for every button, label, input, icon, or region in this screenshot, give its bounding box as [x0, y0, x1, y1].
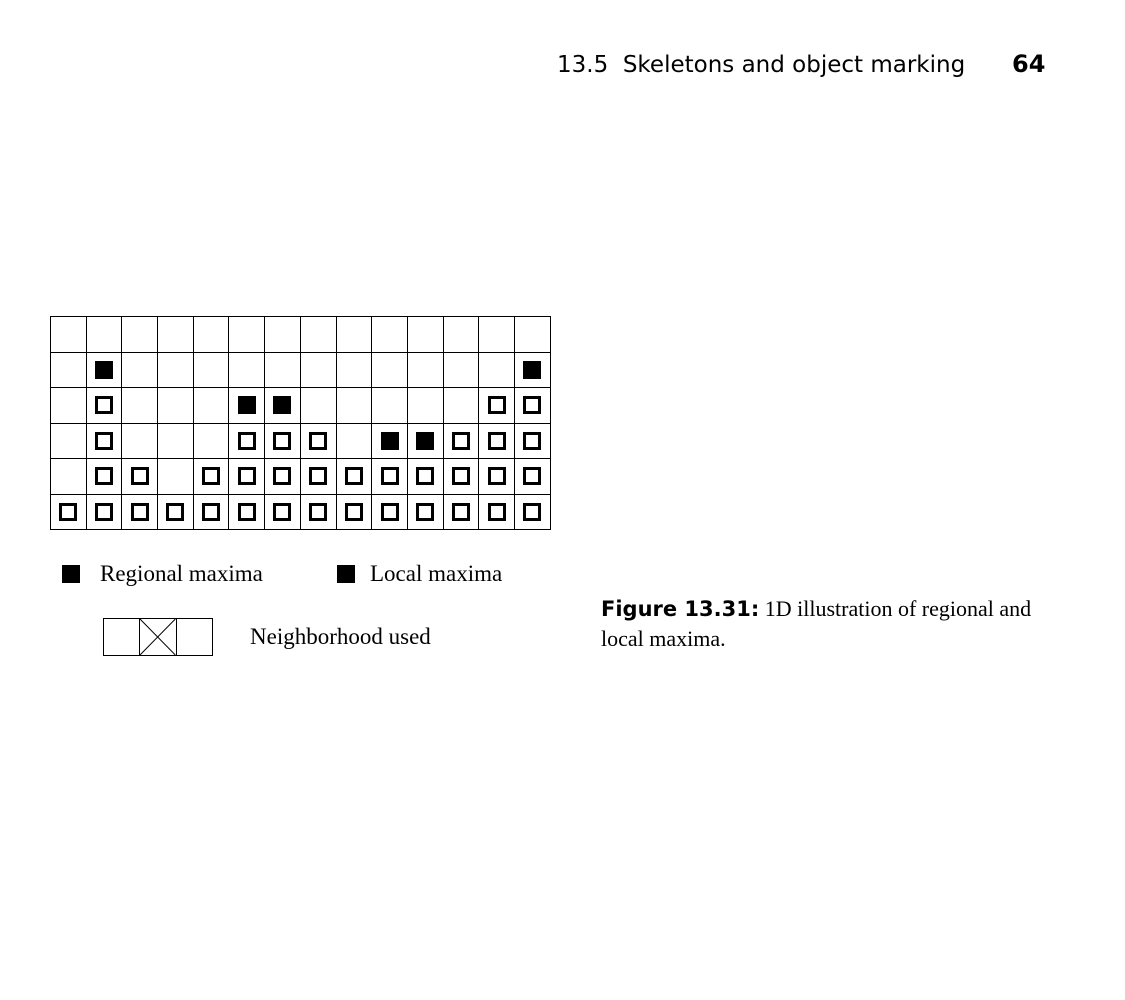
grid-cell	[444, 424, 480, 460]
grid-cell	[515, 459, 551, 495]
pixel-grid	[50, 316, 551, 530]
regional-maxima-swatch-icon	[62, 565, 80, 583]
filled-square	[381, 432, 399, 450]
filled-square	[416, 432, 434, 450]
figure-caption: Figure 13.31: 1D illustration of regiona…	[601, 594, 1069, 653]
outline-square	[488, 432, 506, 450]
x-mark-icon	[140, 619, 176, 655]
grid-cell	[372, 317, 408, 353]
grid-cell	[515, 317, 551, 353]
local-maxima-label: Local maxima	[370, 562, 502, 585]
grid-cell	[158, 388, 194, 424]
grid-cell	[479, 388, 515, 424]
grid-cell	[372, 495, 408, 531]
grid-cell	[301, 388, 337, 424]
outline-square	[95, 467, 113, 485]
grid-cell	[479, 459, 515, 495]
outline-square	[131, 467, 149, 485]
grid-cell	[444, 495, 480, 531]
grid-cell	[158, 459, 194, 495]
grid-cell	[265, 424, 301, 460]
grid-cell	[301, 317, 337, 353]
grid-cell	[515, 353, 551, 389]
grid-cell	[444, 459, 480, 495]
grid-cell	[194, 388, 230, 424]
grid-cell	[444, 388, 480, 424]
grid-cell	[337, 495, 373, 531]
grid-cell	[265, 353, 301, 389]
outline-square	[345, 503, 363, 521]
grid-cell	[158, 353, 194, 389]
grid-cell	[87, 459, 123, 495]
outline-square	[523, 396, 541, 414]
grid-cell	[265, 317, 301, 353]
grid-cell	[51, 495, 87, 531]
grid-cell	[444, 317, 480, 353]
filled-square	[95, 361, 113, 379]
outline-square	[523, 432, 541, 450]
grid-cell	[194, 459, 230, 495]
outline-square	[488, 503, 506, 521]
grid-cell	[229, 353, 265, 389]
outline-square	[488, 396, 506, 414]
grid-cell	[479, 317, 515, 353]
grid-cell	[51, 317, 87, 353]
grid-cell	[51, 459, 87, 495]
grid-cell	[229, 388, 265, 424]
regional-maxima-label: Regional maxima	[100, 562, 263, 585]
grid-cell	[372, 424, 408, 460]
outline-square	[523, 503, 541, 521]
outline-square	[202, 503, 220, 521]
outline-square	[238, 503, 256, 521]
outline-square	[166, 503, 184, 521]
grid-cell	[408, 317, 444, 353]
grid-cell	[87, 388, 123, 424]
outline-square	[416, 503, 434, 521]
grid-cell	[51, 388, 87, 424]
grid-cell	[87, 353, 123, 389]
grid-cell	[515, 424, 551, 460]
grid-cell	[87, 495, 123, 531]
outline-square	[381, 503, 399, 521]
outline-square	[273, 467, 291, 485]
grid-cell	[301, 495, 337, 531]
grid-cell	[479, 424, 515, 460]
outline-square	[452, 503, 470, 521]
outline-square	[59, 503, 77, 521]
grid-cell	[337, 459, 373, 495]
filled-square	[273, 396, 291, 414]
grid-cell	[158, 495, 194, 531]
grid-cell	[122, 495, 158, 531]
outline-square	[488, 467, 506, 485]
grid-cell	[265, 459, 301, 495]
outline-square	[238, 432, 256, 450]
outline-square	[238, 467, 256, 485]
grid-cell	[122, 459, 158, 495]
outline-square	[452, 467, 470, 485]
filled-square	[238, 396, 256, 414]
filled-square	[523, 361, 541, 379]
grid-cell	[372, 459, 408, 495]
grid-row	[51, 459, 551, 495]
grid-cell	[51, 353, 87, 389]
outline-square	[523, 467, 541, 485]
grid-cell	[122, 388, 158, 424]
grid-row	[51, 317, 551, 353]
grid-cell	[122, 317, 158, 353]
grid-cell	[229, 317, 265, 353]
outline-square	[95, 503, 113, 521]
grid-row	[51, 353, 551, 389]
grid-cell	[87, 317, 123, 353]
grid-row	[51, 495, 551, 531]
outline-square	[345, 467, 363, 485]
grid-cell	[122, 424, 158, 460]
neighborhood-center-cell	[140, 619, 176, 655]
grid-cell	[408, 424, 444, 460]
grid-cell	[515, 495, 551, 531]
outline-square	[416, 467, 434, 485]
book-page: 13.5 Skeletons and object marking 64 Reg…	[0, 0, 1125, 1000]
grid-cell	[194, 317, 230, 353]
grid-row	[51, 388, 551, 424]
outline-square	[95, 396, 113, 414]
figure-caption-label: Figure 13.31:	[601, 597, 759, 621]
grid-cell	[51, 424, 87, 460]
grid-cell	[337, 424, 373, 460]
outline-square	[452, 432, 470, 450]
outline-square	[309, 467, 327, 485]
grid-cell	[301, 424, 337, 460]
grid-cell	[337, 317, 373, 353]
page-number: 64	[1012, 50, 1045, 78]
grid-cell	[479, 353, 515, 389]
grid-row	[51, 424, 551, 460]
outline-square	[131, 503, 149, 521]
grid-cell	[301, 459, 337, 495]
grid-cell	[265, 495, 301, 531]
grid-cell	[408, 459, 444, 495]
grid-cell	[408, 495, 444, 531]
grid-cell	[265, 388, 301, 424]
grid-cell	[158, 317, 194, 353]
outline-square	[309, 503, 327, 521]
outline-square	[95, 432, 113, 450]
neighborhood-left-cell	[104, 619, 140, 655]
neighborhood-diagram	[103, 618, 213, 656]
grid-cell	[229, 424, 265, 460]
grid-cell	[158, 424, 194, 460]
grid-cell	[515, 388, 551, 424]
grid-cell	[372, 353, 408, 389]
grid-cell	[229, 459, 265, 495]
grid-cell	[229, 495, 265, 531]
grid-cell	[408, 388, 444, 424]
grid-cell	[372, 388, 408, 424]
neighborhood-label: Neighborhood used	[250, 624, 431, 650]
outline-square	[202, 467, 220, 485]
grid-cell	[194, 353, 230, 389]
outline-square	[381, 467, 399, 485]
grid-cell	[479, 495, 515, 531]
grid-cell	[337, 388, 373, 424]
outline-square	[273, 432, 291, 450]
neighborhood-right-cell	[177, 619, 212, 655]
outline-square	[273, 503, 291, 521]
local-maxima-swatch-icon	[337, 565, 355, 583]
grid-cell	[194, 495, 230, 531]
grid-cell	[301, 353, 337, 389]
grid-cell	[408, 353, 444, 389]
grid-cell	[194, 424, 230, 460]
grid-cell	[87, 424, 123, 460]
outline-square	[309, 432, 327, 450]
grid-cell	[122, 353, 158, 389]
grid-cell	[337, 353, 373, 389]
grid-cell	[444, 353, 480, 389]
running-head-section: 13.5 Skeletons and object marking	[557, 52, 965, 78]
